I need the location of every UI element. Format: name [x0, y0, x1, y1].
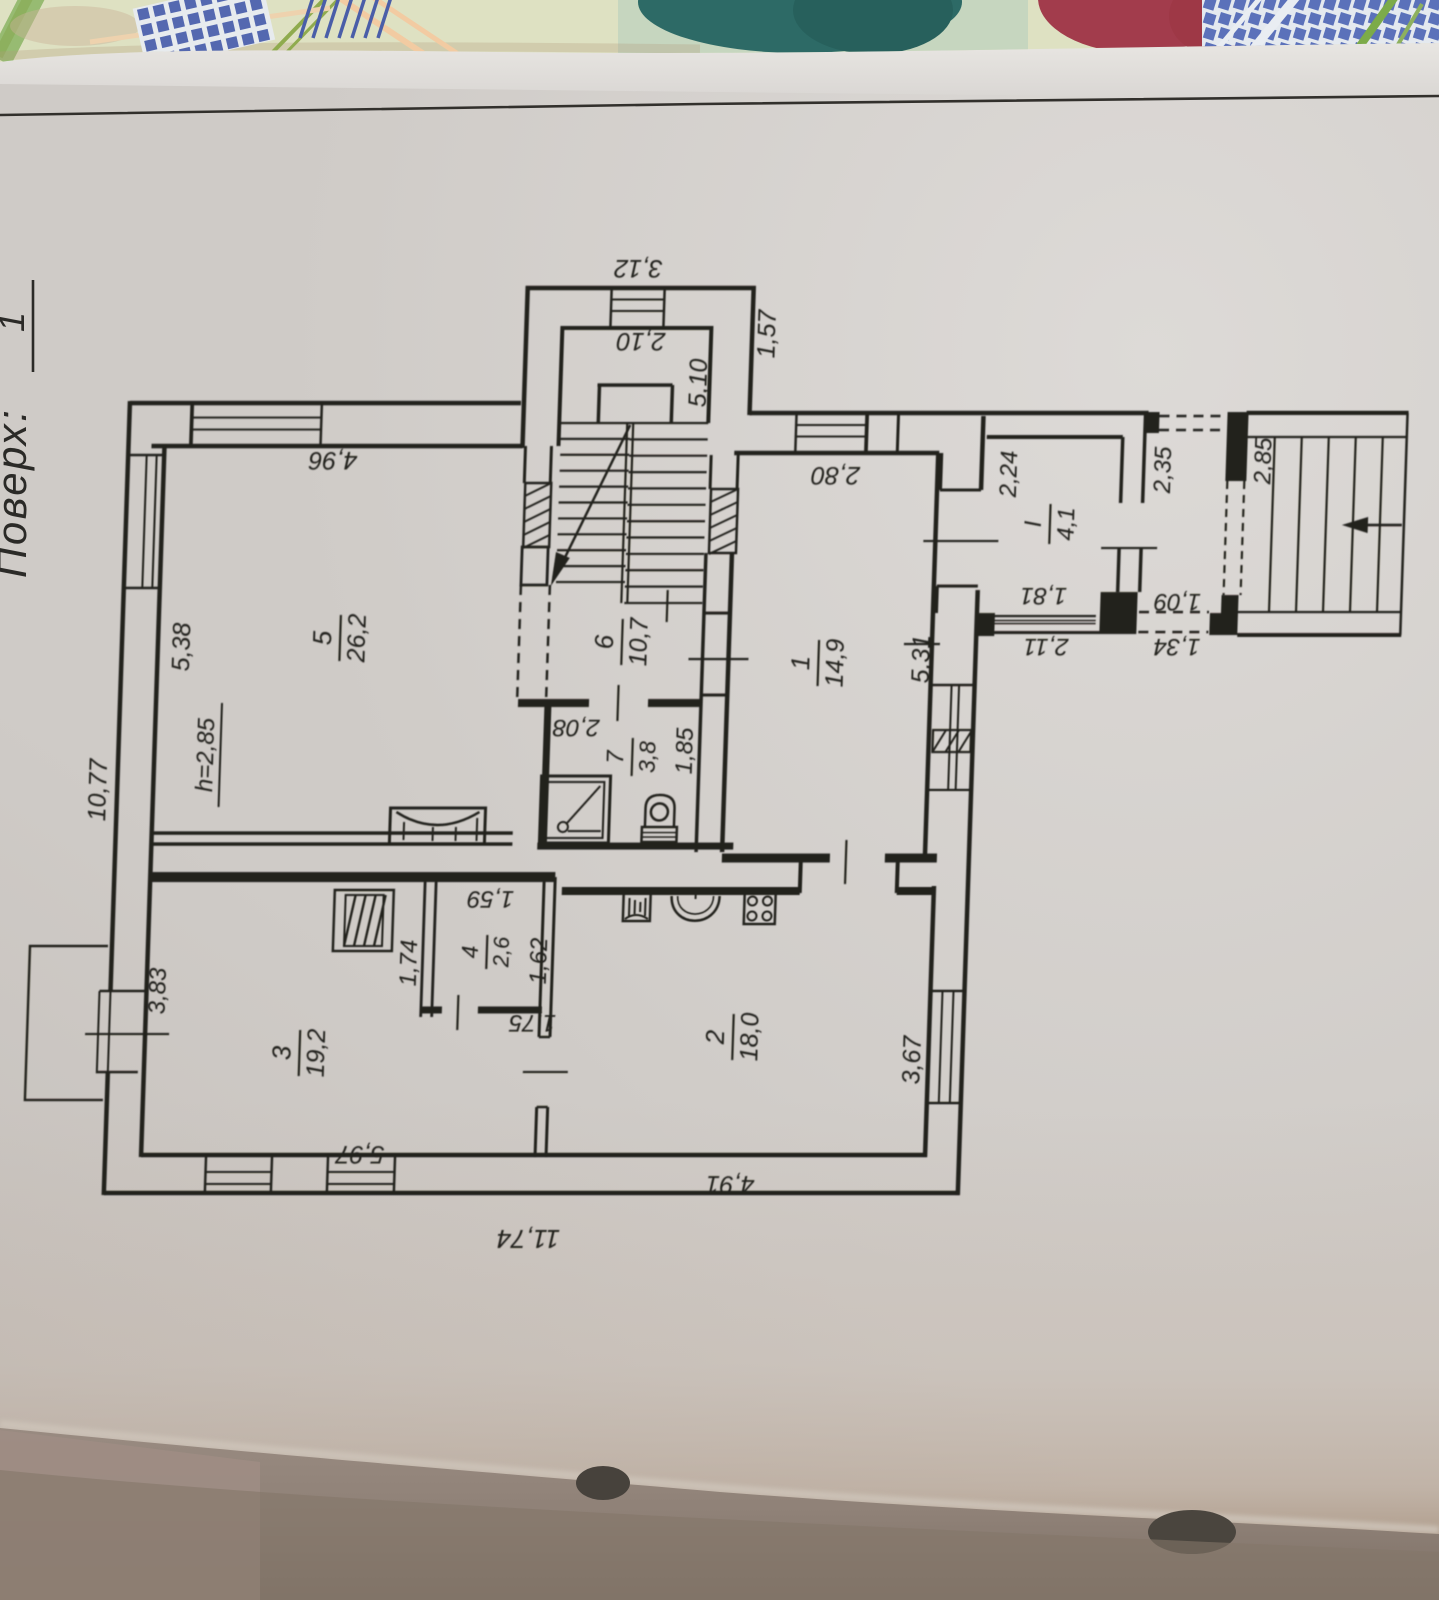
- svg-text:1,34: 1,34: [1153, 633, 1201, 660]
- svg-text:4: 4: [457, 946, 483, 959]
- svg-text:2,35: 2,35: [1149, 446, 1178, 494]
- svg-text:2,80: 2,80: [811, 461, 862, 489]
- svg-text:h=2,85: h=2,85: [191, 717, 220, 792]
- svg-text:1,57: 1,57: [752, 309, 782, 359]
- svg-text:3: 3: [266, 1045, 296, 1060]
- svg-text:1,59: 1,59: [467, 885, 515, 912]
- svg-text:6: 6: [589, 634, 619, 649]
- svg-text:3,8: 3,8: [634, 741, 661, 773]
- svg-text:14,9: 14,9: [821, 639, 851, 688]
- svg-text:10,7: 10,7: [624, 617, 654, 667]
- svg-text:2: 2: [700, 1029, 731, 1045]
- svg-text:10,77: 10,77: [83, 758, 113, 822]
- svg-text:2,08: 2,08: [552, 714, 601, 741]
- svg-text:26,2: 26,2: [342, 614, 372, 664]
- svg-text:5,38: 5,38: [167, 623, 197, 672]
- svg-text:1: 1: [785, 656, 815, 670]
- svg-text:2,11: 2,11: [1023, 633, 1070, 660]
- svg-text:1,81: 1,81: [1020, 582, 1068, 609]
- svg-text:I: I: [1020, 520, 1047, 527]
- svg-text:3,67: 3,67: [897, 1035, 927, 1085]
- svg-text:7: 7: [602, 749, 629, 764]
- svg-text:18,0: 18,0: [735, 1013, 765, 1062]
- svg-text:3,12: 3,12: [613, 254, 663, 282]
- svg-text:3,83: 3,83: [144, 967, 173, 1014]
- svg-text:2,10: 2,10: [616, 327, 667, 355]
- svg-text:1,62: 1,62: [525, 938, 554, 985]
- svg-text:2,24: 2,24: [995, 451, 1024, 499]
- svg-text:19,2: 19,2: [302, 1029, 332, 1078]
- svg-text:1,74: 1,74: [395, 940, 424, 987]
- svg-text:4,1: 4,1: [1052, 507, 1080, 540]
- svg-text:1: 1: [0, 312, 32, 332]
- svg-text:5: 5: [307, 630, 337, 645]
- svg-text:Поверх:: Поверх:: [0, 408, 35, 578]
- svg-text:11,74: 11,74: [496, 1224, 560, 1254]
- svg-text:2,6: 2,6: [488, 936, 514, 968]
- svg-text:1,85: 1,85: [671, 727, 700, 774]
- svg-text:4,96: 4,96: [308, 446, 358, 474]
